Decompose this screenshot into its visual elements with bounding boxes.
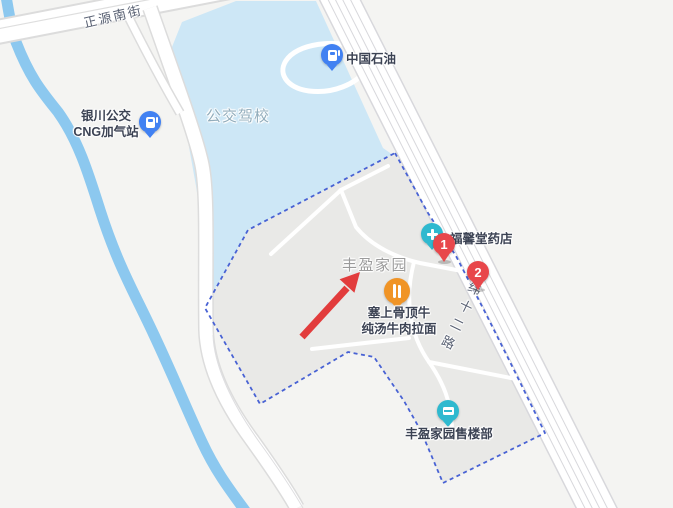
- marker-1-number: 1: [433, 233, 455, 255]
- storefront-icon: [443, 407, 454, 415]
- marker-2-number: 2: [467, 261, 489, 283]
- map-canvas[interactable]: 正源南街 纬十二路 公交驾校 丰盈家园 中国石油 银川公交 CNG加气站 福馨堂…: [0, 0, 673, 508]
- pharmacy-label: 福馨堂药店: [450, 228, 513, 247]
- estate-name-label: 丰盈家园: [342, 254, 408, 275]
- sales-office-poi-icon[interactable]: [437, 400, 459, 422]
- cng-station-label: 银川公交 CNG加气站: [68, 108, 144, 140]
- petrochina-label: 中国石油: [346, 48, 396, 67]
- cng-station-label-line1: 银川公交: [68, 108, 144, 124]
- restaurant-label-line1: 塞上骨顶牛: [361, 306, 436, 322]
- cng-station-label-line2: CNG加气站: [68, 124, 144, 140]
- sales-office-label: 丰盈家园售楼部: [405, 427, 493, 443]
- restaurant-label-line2: 纯汤牛肉拉面: [361, 322, 436, 338]
- fuel-pump-icon: [328, 50, 337, 61]
- fuel-pump-icon: [146, 117, 155, 128]
- fork-knife-icon: [391, 285, 403, 298]
- driving-school-label: 公交驾校: [206, 105, 270, 126]
- petrochina-poi-icon[interactable]: [321, 44, 343, 66]
- restaurant-poi-icon[interactable]: [384, 278, 410, 304]
- marker-1[interactable]: 1: [433, 233, 455, 263]
- basemap-layer: [0, 0, 673, 508]
- marker-2[interactable]: 2: [467, 261, 489, 291]
- restaurant-label: 塞上骨顶牛 纯汤牛肉拉面: [361, 306, 436, 337]
